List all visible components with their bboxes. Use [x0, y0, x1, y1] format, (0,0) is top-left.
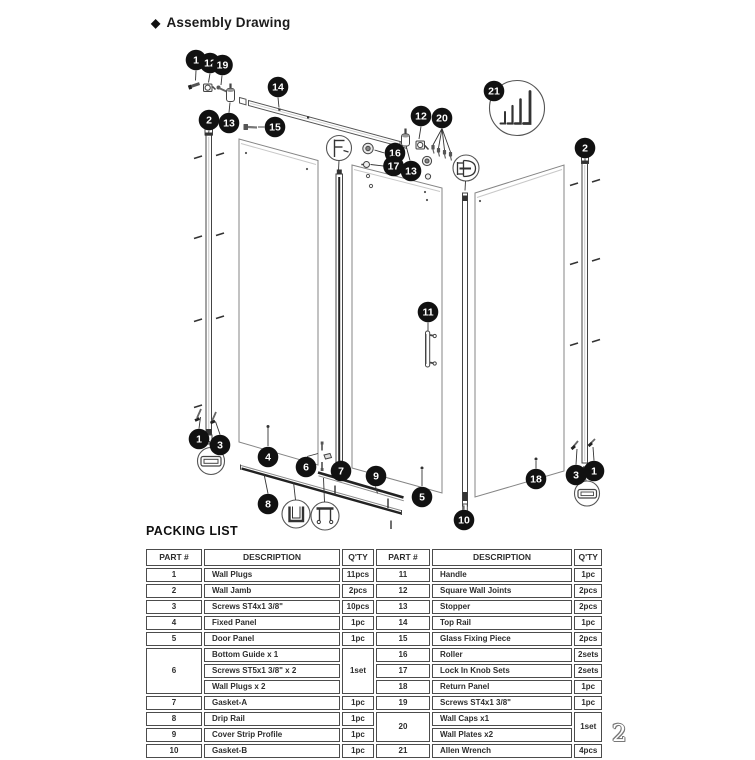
table-cell: Screws ST4x1 3/8" — [432, 696, 572, 710]
callout-4: 4 — [258, 447, 279, 468]
table-row: 6Bottom Guide x 11set16Roller2sets — [146, 648, 602, 662]
svg-text:14: 14 — [272, 82, 284, 94]
callout-5: 5 — [412, 487, 433, 508]
table-cell: 3 — [146, 600, 202, 614]
middle-jamb — [463, 193, 468, 513]
table-cell: Wall Plates x2 — [432, 728, 572, 742]
return-panel — [475, 165, 564, 497]
svg-text:20: 20 — [436, 113, 448, 125]
callout-17: 17 — [383, 156, 404, 177]
table-header-cell: PART # — [376, 549, 430, 566]
table-cell: Fixed Panel — [204, 616, 340, 630]
table-row: 5Door Panel1pc15Glass Fixing Piece2pcs — [146, 632, 602, 646]
detail-u-channel — [282, 500, 310, 528]
callout-13: 13 — [219, 113, 240, 134]
table-cell: Gasket-A — [204, 696, 340, 710]
packing-list-heading: PACKING LIST — [146, 524, 238, 538]
table-cell: Lock In Knob Sets — [432, 664, 572, 678]
table-cell: 1pc — [574, 680, 602, 694]
table-cell: Handle — [432, 568, 572, 582]
callout-15: 15 — [265, 117, 286, 138]
square-wall-joint-part — [204, 84, 216, 92]
table-cell: 7 — [146, 696, 202, 710]
callout-19: 19 — [212, 55, 233, 76]
table-cell: Screws ST5x1 3/8" x 2 — [204, 664, 340, 678]
table-header-cell: Q'TY — [574, 549, 602, 566]
table-cell: 15 — [376, 632, 430, 646]
svg-text:11: 11 — [422, 307, 433, 319]
table-cell: Wall Jamb — [204, 584, 340, 598]
stopper-part-left — [227, 84, 235, 102]
svg-text:21: 21 — [488, 86, 500, 98]
page-number: 2 — [612, 721, 627, 747]
table-row: 1Wall Plugs11pcs11Handle1pc — [146, 568, 602, 582]
screw-part-19 — [217, 86, 227, 92]
table-cell: 4 — [146, 616, 202, 630]
svg-text:9: 9 — [373, 471, 379, 483]
table-row: 2Wall Jamb2pcs12Square Wall Joints2pcs — [146, 584, 602, 598]
callout-3: 3 — [210, 435, 231, 456]
table-cell: 1pc — [342, 744, 374, 758]
table-header-cell: Q'TY — [342, 549, 374, 566]
svg-text:3: 3 — [573, 470, 579, 482]
table-header-cell: PART # — [146, 549, 202, 566]
svg-text:3: 3 — [217, 440, 223, 452]
table-row: 9Cover Strip Profile1pcWall Plates x2 — [146, 728, 602, 742]
table-row: 7Gasket-A1pc19Screws ST4x1 3/8"1pc — [146, 696, 602, 710]
table-cell: 2pcs — [574, 600, 602, 614]
packing-table-header-row: PART #DESCRIPTIONQ'TYPART #DESCRIPTIONQ'… — [146, 549, 602, 566]
table-cell: Drip Rail — [204, 712, 340, 726]
table-cell: 2 — [146, 584, 202, 598]
table-header-cell: DESCRIPTION — [432, 549, 572, 566]
table-cell: 13 — [376, 600, 430, 614]
table-cell: 14 — [376, 616, 430, 630]
table-cell: 1pc — [574, 568, 602, 582]
table-row: 3Screws ST4x1 3/8"10pcs13Stopper2pcs — [146, 600, 602, 614]
svg-text:2: 2 — [582, 143, 588, 155]
svg-text:1: 1 — [193, 55, 199, 67]
stopper-part-mid — [402, 129, 410, 147]
svg-text:15: 15 — [269, 122, 281, 134]
callout-2: 2 — [199, 110, 220, 131]
svg-text:5: 5 — [419, 492, 425, 504]
table-row: 4Fixed Panel1pc14Top Rail1pc — [146, 616, 602, 630]
svg-text:2: 2 — [206, 115, 212, 127]
table-cell: Square Wall Joints — [432, 584, 572, 598]
svg-text:1: 1 — [196, 434, 202, 446]
callout-14: 14 — [268, 77, 289, 98]
detail-roller-profile — [327, 136, 352, 161]
table-cell: 10pcs — [342, 600, 374, 614]
svg-text:17: 17 — [388, 161, 400, 173]
callout-7: 7 — [331, 461, 352, 482]
table-cell: Door Panel — [204, 632, 340, 646]
table-cell: 1pc — [574, 616, 602, 630]
table-cell: 8 — [146, 712, 202, 726]
table-cell: 18 — [376, 680, 430, 694]
callout-13: 13 — [401, 161, 422, 182]
table-cell: 11 — [376, 568, 430, 582]
table-cell: 2pcs — [342, 584, 374, 598]
table-cell: Return Panel — [432, 680, 572, 694]
right-wall-jamb — [570, 155, 600, 469]
table-cell: 2pcs — [574, 584, 602, 598]
table-cell: Bottom Guide x 1 — [204, 648, 340, 662]
table-cell: Gasket-B — [204, 744, 340, 758]
table-cell: 1 — [146, 568, 202, 582]
wall-caps-plates-parts — [431, 129, 452, 161]
svg-text:8: 8 — [265, 499, 271, 511]
table-cell: Roller — [432, 648, 572, 662]
table-row: 10Gasket-B1pc21Allen Wrench4pcs — [146, 744, 602, 758]
callout-1: 1 — [584, 461, 605, 482]
table-cell: 12 — [376, 584, 430, 598]
table-cell: 16 — [376, 648, 430, 662]
callout-9: 9 — [366, 466, 387, 487]
svg-text:13: 13 — [223, 118, 235, 130]
svg-text:4: 4 — [265, 452, 271, 464]
svg-text:10: 10 — [458, 515, 470, 527]
table-cell: 2sets — [574, 648, 602, 662]
table-cell: 11pcs — [342, 568, 374, 582]
table-cell: 4pcs — [574, 744, 602, 758]
left-wall-jamb — [194, 126, 224, 444]
table-row: 8Drip Rail1pc20Wall Caps x11set — [146, 712, 602, 726]
cover-strip — [336, 170, 343, 471]
table-cell: 17 — [376, 664, 430, 678]
callout-10: 10 — [454, 510, 475, 531]
svg-text:12: 12 — [415, 111, 427, 123]
svg-text:19: 19 — [217, 60, 229, 72]
door-panel — [352, 165, 442, 493]
table-cell: 10 — [146, 744, 202, 758]
callout-8: 8 — [258, 494, 279, 515]
table-header-cell: DESCRIPTION — [204, 549, 340, 566]
svg-text:13: 13 — [405, 166, 417, 178]
table-row: Screws ST5x1 3/8" x 217Lock In Knob Sets… — [146, 664, 602, 678]
table-cell: 5 — [146, 632, 202, 646]
table-cell: 1set — [574, 712, 602, 742]
svg-text:18: 18 — [530, 474, 542, 486]
table-cell: 1pc — [574, 696, 602, 710]
table-cell: Glass Fixing Piece — [432, 632, 572, 646]
callout-11: 11 — [418, 302, 439, 323]
svg-text:7: 7 — [338, 466, 344, 478]
table-cell: 6 — [146, 648, 202, 694]
table-cell: 19 — [376, 696, 430, 710]
table-cell: 1set — [342, 648, 374, 694]
top-rail — [240, 98, 407, 149]
table-cell: 1pc — [342, 728, 374, 742]
svg-text:6: 6 — [303, 462, 309, 474]
bottom-guide-parts — [321, 442, 332, 472]
svg-text:1: 1 — [591, 466, 597, 478]
wall-plug-part — [189, 84, 200, 88]
callout-21: 21 — [484, 81, 505, 102]
packing-table: PART #DESCRIPTIONQ'TYPART #DESCRIPTIONQ'… — [144, 547, 604, 760]
table-cell: 1pc — [342, 712, 374, 726]
table-cell: Stopper — [432, 600, 572, 614]
table-cell: Wall Caps x1 — [432, 712, 572, 726]
fixed-panel — [239, 139, 318, 465]
table-cell: 2pcs — [574, 632, 602, 646]
glass-fixing-screw-part — [244, 124, 258, 130]
callout-3: 3 — [566, 465, 587, 486]
callout-2: 2 — [575, 138, 596, 159]
table-cell: Wall Plugs — [204, 568, 340, 582]
table-cell: 21 — [376, 744, 430, 758]
table-cell: 1pc — [342, 696, 374, 710]
table-cell: 2sets — [574, 664, 602, 678]
detail-jamb-clip-profile — [453, 155, 479, 181]
detail-guide-profile — [311, 502, 339, 530]
table-cell: 1pc — [342, 632, 374, 646]
callout-1: 1 — [189, 429, 210, 450]
table-cell: Cover Strip Profile — [204, 728, 340, 742]
table-cell: Wall Plugs x 2 — [204, 680, 340, 694]
table-cell: Top Rail — [432, 616, 572, 630]
table-cell: 1pc — [342, 616, 374, 630]
table-cell: Allen Wrench — [432, 744, 572, 758]
callout-12: 12 — [411, 106, 432, 127]
callout-6: 6 — [296, 457, 317, 478]
callout-18: 18 — [526, 469, 547, 490]
table-cell: 20 — [376, 712, 430, 742]
square-wall-joint-part-mid — [416, 141, 429, 150]
table-cell: Screws ST4x1 3/8" — [204, 600, 340, 614]
callout-20: 20 — [432, 108, 453, 129]
table-row: Wall Plugs x 218Return Panel1pc — [146, 680, 602, 694]
table-cell: 9 — [146, 728, 202, 742]
